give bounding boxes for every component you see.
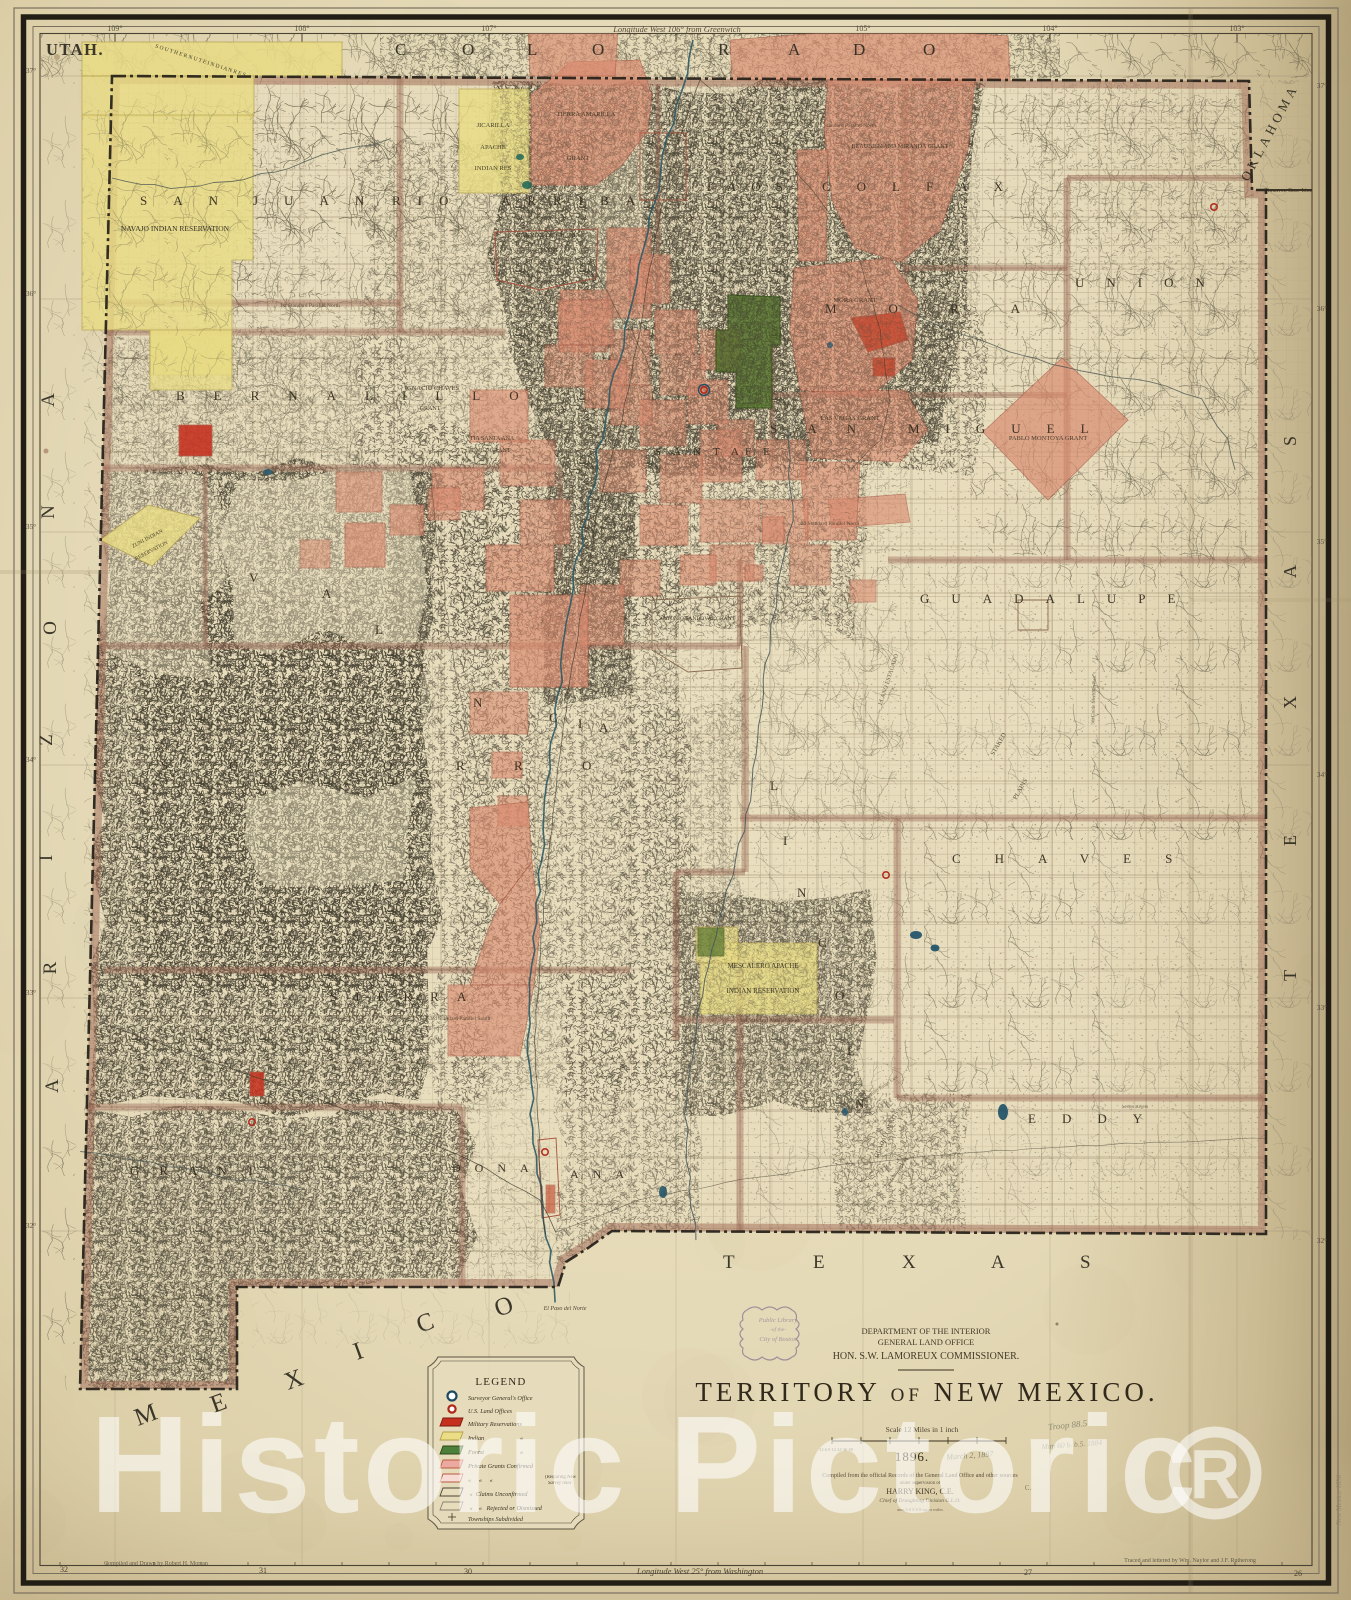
svg-text:ANTONIO SANDOVAL GRANT: ANTONIO SANDOVAL GRANT [659,616,736,622]
svg-text:104°: 104° [1042,24,1057,33]
svg-text:PABLO MONTOYA GRANT: PABLO MONTOYA GRANT [1009,435,1087,442]
svg-text:36°: 36° [1317,304,1328,313]
svg-text:105°: 105° [855,24,870,33]
svg-text:34°: 34° [1317,770,1328,779]
svg-text:Longitude West 25° fro: Longitude West 25° from Washington [636,1566,763,1576]
svg-text:Seven Rivers: Seven Rivers [1122,1105,1149,1110]
svg-text:A: A [38,393,59,407]
svg-text:37°: 37° [1317,81,1328,90]
svg-text:RIO: RIO [392,193,465,208]
svg-text:DEPARTMENT OF THE INTERIOR: DEPARTMENT OF THE INTERIOR [862,1326,991,1336]
svg-text:D: D [853,40,865,59]
svg-text:TIA SANTA ANA: TIA SANTA ANA [470,436,515,442]
svg-text:O: O [923,40,935,59]
svg-text:BERNALILLO: BERNALILLO [176,388,548,403]
svg-text:N: N [797,885,807,900]
svg-text:CANYON DE CHAMA: CANYON DE CHAMA [516,232,580,239]
svg-text:L: L [375,622,383,637]
svg-text:New Mexico 1896: New Mexico 1896 [1335,1474,1343,1526]
svg-text:E: E [420,660,428,675]
svg-text:32°: 32° [26,1221,37,1230]
svg-text:O: O [462,40,474,59]
svg-text:108°: 108° [294,24,309,33]
svg-text:O: O [383,758,392,773]
svg-text:A: A [1280,565,1300,578]
svg-text:V: V [249,570,259,585]
svg-text:GRANT: GRANT [420,406,441,412]
svg-text:32: 32 [60,1565,68,1574]
svg-text:C: C [549,710,558,725]
svg-text:31: 31 [259,1566,267,1575]
svg-text:C: C [818,935,827,950]
svg-text:E: E [813,1252,825,1273]
svg-text:Compiled and Drawn by Robert H: Compiled and Drawn by Robert H. Morran [104,1561,208,1567]
svg-text:34°: 34° [26,755,37,764]
svg-text:S: S [1280,436,1300,446]
svg-text:APACHE: APACHE [480,144,505,151]
svg-text:EDDY: EDDY [1028,1111,1168,1126]
svg-text:36°: 36° [26,289,37,298]
svg-text:O: O [229,758,238,773]
svg-text:O: O [40,621,61,635]
svg-text:SAN: SAN [770,421,886,436]
svg-text:SANTA: SANTA [655,446,751,458]
svg-text:R: R [1190,1435,1241,1513]
svg-text:Z: Z [36,734,57,746]
svg-text:UNION: UNION [1075,275,1227,290]
svg-text:C: C [307,758,316,773]
svg-text:JICARILLA: JICARILLA [477,122,510,129]
svg-text:HON. S.W. LAMOREUX COMMISSION: HON. S.W. LAMOREUX COMMISSIONER. [833,1351,1020,1362]
svg-text:Historic Pictoric: Historic Pictoric [90,1388,1199,1542]
svg-text:107°: 107° [481,24,496,33]
svg-text:A: A [788,40,801,59]
svg-text:Cimarron Base Line: Cimarron Base Line [1264,188,1313,194]
svg-text:3rd Standard Parallel South: 3rd Standard Parallel South [740,1018,801,1024]
svg-text:X: X [902,1252,916,1273]
svg-text:32°: 32° [1317,1236,1328,1245]
svg-text:L: L [527,40,537,59]
svg-text:COLFAX: COLFAX [822,179,1029,194]
svg-text:I: I [36,855,57,861]
svg-text:GENERAL LAND OFFICE: GENERAL LAND OFFICE [878,1337,975,1347]
svg-text:E: E [1280,835,1300,846]
svg-text:NAVAJO INDIAN RESERVATION: NAVAJO INDIAN RESERVATION [121,224,230,233]
svg-text:I: I [578,716,582,731]
svg-text:2d Standard Parallel Nor: 2d Standard Parallel North [801,521,860,527]
svg-text:3rd Standard Parallel South: 3rd Standard Parallel South [430,1016,491,1022]
svg-text:TIERRA AMARILLA: TIERRA AMARILLA [557,111,616,118]
svg-text:R: R [456,758,465,773]
svg-text:33°: 33° [1317,1003,1328,1012]
svg-text:O: O [835,988,844,1003]
svg-text:A: A [322,586,332,601]
svg-text:TAOS: TAOS [705,179,798,194]
svg-text:R: R [718,40,730,59]
svg-text:INDIAN RES: INDIAN RES [475,165,512,172]
svg-text:35°: 35° [1317,537,1328,546]
svg-text:-of the-: -of the- [770,1326,786,1333]
svg-text:T: T [1280,970,1300,981]
svg-text:1st Standard Parallel North: 1st Standard Parallel North [280,303,340,309]
svg-text:GRANT: GRANT [538,248,559,254]
svg-text:City of Boston: City of Boston [759,1336,796,1343]
svg-text:27: 27 [1024,1568,1032,1577]
svg-text:GRANT: GRANT [567,155,589,162]
svg-text:DOÑA: DOÑA [452,1161,543,1175]
svg-text:L: L [847,1043,855,1058]
svg-text:Stan dard: Stan dard [550,1044,570,1049]
svg-text:S: S [1080,1252,1091,1273]
svg-text:INDIAN RESERVATION: INDIAN RESERVATION [726,987,799,995]
svg-text:Public Library: Public Library [758,1317,798,1324]
svg-text:GRANT: GRANT [130,1163,275,1178]
svg-text:O: O [592,40,604,59]
svg-text:ARRIBA: ARRIBA [501,193,652,208]
svg-text:S: S [161,758,168,773]
svg-text:SAN: SAN [140,193,244,208]
svg-text:SIERRA: SIERRA [330,989,484,1004]
svg-text:X: X [1280,696,1300,709]
svg-text:LEGEND: LEGEND [475,1376,526,1388]
svg-text:37°: 37° [26,66,37,75]
svg-text:JEMEZ GRANT: JEMEZ GRANT [470,448,511,454]
svg-text:30: 30 [464,1567,472,1576]
svg-text:FE: FE [745,446,782,458]
svg-text:MORA GRANT: MORA GRANT [833,297,876,304]
svg-text:LAS VEGAS GRANT: LAS VEGAS GRANT [820,415,879,422]
svg-text:Longitude West 106° from: Longitude West 106° from Greenwich [612,24,741,34]
svg-text:R: R [40,961,61,974]
svg-text:33°: 33° [26,988,37,997]
svg-text:JUAN: JUAN [253,193,390,208]
svg-text:El Paso del Norte: El Paso del Norte [543,1306,587,1312]
svg-text:MESCALERO APACHE: MESCALERO APACHE [727,962,798,970]
svg-text:T: T [723,1252,735,1273]
svg-text:IGNACIO CHAVES: IGNACIO CHAVES [405,385,460,392]
svg-text:GUADALUPE: GUADALUPE [920,591,1197,606]
svg-text:O: O [582,758,591,773]
svg-text:35°: 35° [26,522,37,531]
svg-text:109°: 109° [107,24,122,33]
svg-text:R: R [514,758,523,773]
svg-text:A: A [42,1079,63,1093]
svg-text:MIGUEL: MIGUEL [908,421,1115,436]
svg-text:N: N [473,695,483,710]
svg-text:N: N [38,505,59,519]
svg-text:BEAUBIEN AND MIRANDA GRA: BEAUBIEN AND MIRANDA GRANT [852,144,949,150]
svg-text:103°: 103° [1229,24,1244,33]
svg-text:26: 26 [1294,1569,1302,1578]
svg-text:I: I [783,833,787,848]
svg-text:C: C [395,40,406,59]
svg-text:ANA: ANA [570,1167,638,1181]
svg-text:A: A [991,1252,1005,1273]
svg-text:Standard Parallel North: Standard Parallel North [824,123,876,129]
svg-text:A: A [599,720,609,735]
svg-text:CHAVES: CHAVES [952,851,1206,866]
svg-text:L: L [770,778,778,793]
